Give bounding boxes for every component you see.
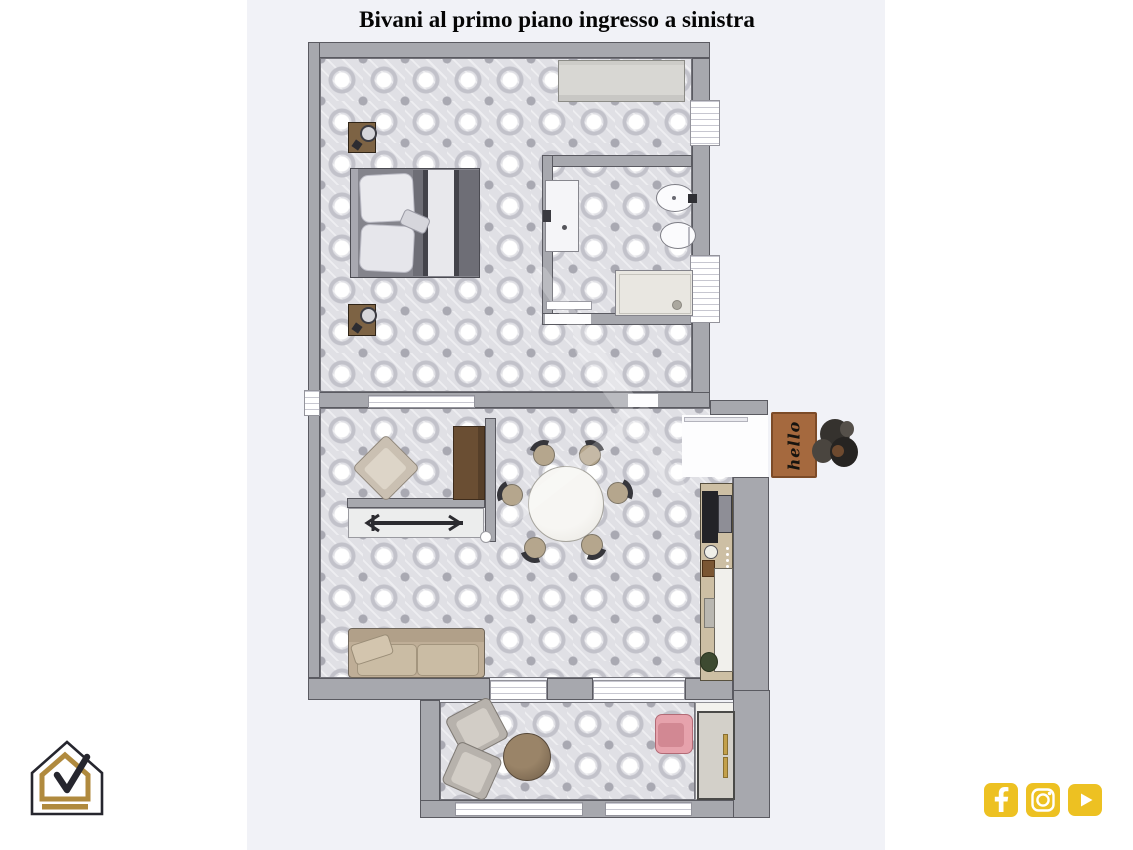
door-hinge-dot (480, 531, 492, 543)
tap-icon (688, 194, 697, 203)
plant-pot (832, 445, 844, 457)
wall-top (308, 42, 710, 58)
window-right-1 (690, 100, 720, 146)
dining-chair (579, 444, 601, 466)
sink-vanity (545, 180, 579, 252)
wall-bottom-mid (685, 678, 733, 700)
lamp-detail (351, 139, 362, 150)
wall-alcove-right (485, 418, 496, 542)
nightstand (348, 122, 376, 153)
shower-tray (615, 270, 693, 316)
entry-plant (812, 415, 862, 475)
sideboard-handle (723, 734, 728, 755)
dining-chair (524, 537, 546, 559)
window-bedroom-left (304, 390, 320, 416)
lamp-icon (360, 307, 377, 324)
agency-house-check-logo (28, 738, 106, 818)
drain-dot (672, 196, 676, 200)
knob-dot (726, 559, 729, 562)
entry-door-leaf (684, 417, 748, 422)
double-bed (350, 168, 480, 278)
sofa-cushion (417, 644, 479, 676)
window-right-2 (690, 255, 720, 323)
tap-icon (543, 210, 551, 222)
tv-icon (702, 491, 718, 543)
dining-chair (501, 484, 523, 506)
doormat-text: hello (785, 420, 804, 470)
plant-icon (700, 652, 718, 672)
wardrobe (558, 60, 685, 102)
sideboard (697, 711, 735, 800)
knob-dot (726, 553, 729, 556)
lamp-icon (360, 125, 377, 142)
sofa (348, 628, 485, 678)
entry-doormat: hello (771, 412, 817, 478)
window-veranda-1 (455, 802, 583, 816)
headboard (351, 169, 358, 277)
lamp-detail (351, 322, 362, 333)
window-living-2 (593, 680, 685, 700)
door-bathroom-opening (545, 314, 591, 324)
instagram-icon[interactable] (1026, 783, 1060, 817)
drain-dot (562, 225, 567, 230)
image-canvas: Bivani al primo piano ingresso a sinistr… (0, 0, 1133, 850)
bidet (656, 184, 694, 212)
door-hallway-opening (628, 394, 658, 407)
wall-veranda-right (733, 690, 770, 818)
wall-entry-top (710, 400, 768, 415)
round-pouf (503, 733, 551, 781)
pink-armchair-seat (658, 723, 684, 747)
facebook-icon[interactable] (984, 783, 1018, 817)
pillow (359, 224, 415, 274)
youtube-icon[interactable] (1068, 784, 1102, 816)
pink-armchair (655, 714, 693, 754)
plant-leaf (840, 421, 854, 437)
dining-chair (533, 444, 555, 466)
entry-threshold (682, 415, 768, 477)
nightstand (348, 304, 376, 336)
armchair-seat (363, 447, 407, 491)
coat-rack-icon (357, 513, 477, 533)
sideboard-handle (723, 757, 728, 778)
wall-bottom-pillar (547, 678, 593, 700)
toilet (660, 222, 696, 249)
wall-bath-top (542, 155, 692, 167)
wall-bottom-left (308, 678, 490, 700)
knob-dot (726, 547, 729, 550)
kitchen-sink (704, 598, 715, 628)
door-bedroom (368, 395, 475, 408)
page-title: Bivani al primo piano ingresso a sinistr… (247, 7, 867, 33)
window-living-1 (490, 680, 547, 700)
dining-chair (581, 534, 603, 556)
console-table (348, 508, 484, 538)
shower-drain (672, 300, 682, 310)
tall-cabinet (453, 426, 485, 500)
wall-left (308, 42, 320, 678)
wall-right-living (733, 477, 769, 703)
tv-screen (718, 495, 732, 533)
toilet-lid-line (688, 227, 690, 245)
dining-chair (607, 482, 629, 504)
door-bathroom-leaf (546, 301, 592, 310)
kettle-icon (704, 545, 718, 559)
window-veranda-2 (605, 802, 692, 816)
